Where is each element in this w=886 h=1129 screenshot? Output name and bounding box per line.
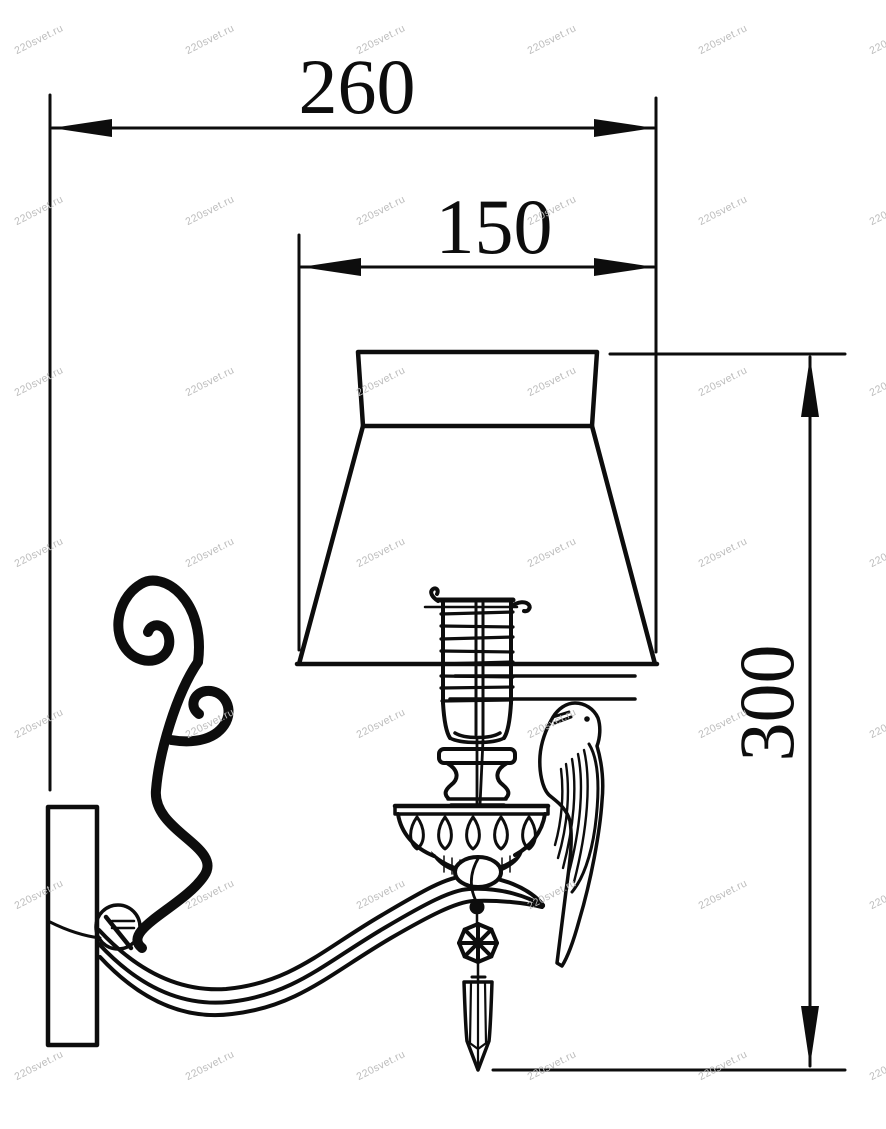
large-curl xyxy=(118,581,199,662)
bird-eye xyxy=(584,716,590,722)
sconce-technical-drawing: 260 150 300 xyxy=(0,0,886,1129)
pendant-knob xyxy=(470,900,485,915)
center-rod xyxy=(476,602,483,735)
dim-260-label: 260 xyxy=(299,43,416,130)
scroll-ornament xyxy=(118,581,228,948)
dimension-overall-width: 260 xyxy=(50,43,656,790)
sleeve-right-lip xyxy=(511,602,530,611)
dim-300-label: 300 xyxy=(723,645,810,762)
vine-end-ticks xyxy=(112,921,134,928)
arrowhead-left xyxy=(52,119,112,137)
dimension-shade-width: 150 xyxy=(299,183,654,650)
wall-bracket xyxy=(48,807,140,1045)
crystal-pendant xyxy=(459,900,497,1071)
shade-top-band xyxy=(358,352,597,426)
dimension-height: 300 xyxy=(493,354,845,1070)
crystal-drop-facets xyxy=(467,983,489,1070)
arrowhead-right xyxy=(594,119,654,137)
rosette-spokes xyxy=(459,924,497,962)
arrowhead-up xyxy=(801,357,819,417)
arrowhead-right xyxy=(594,258,654,276)
candle-holder xyxy=(439,740,515,805)
teardrop-cutouts xyxy=(411,817,536,849)
dim-150-label: 150 xyxy=(436,183,553,270)
sleeve-left-curl xyxy=(431,588,438,601)
technical-drawing-page: 260 150 300 xyxy=(0,0,886,1129)
arrowhead-down xyxy=(801,1006,819,1066)
bird-figure xyxy=(540,703,603,966)
arrowhead-left xyxy=(301,258,361,276)
